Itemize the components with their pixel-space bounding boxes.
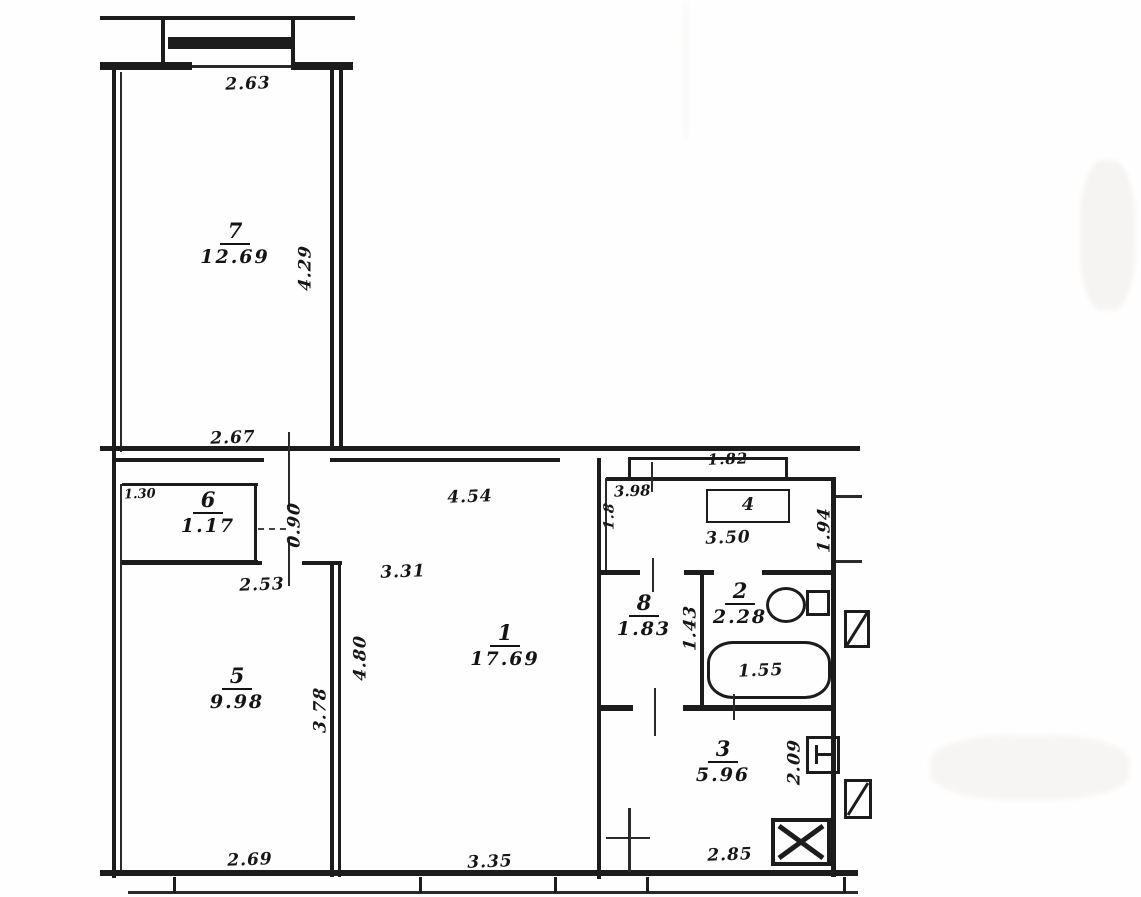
kitchen-top-wall-1 — [601, 705, 633, 711]
room7-left-wall-inner — [120, 72, 122, 452]
dim-room7-top: 2.63 — [200, 72, 297, 95]
room6-number: 6 — [193, 489, 224, 514]
vent-shaft-diagonal-1 — [844, 610, 870, 648]
room6-label: 6 1.17 — [172, 489, 244, 537]
dim-entry-door: 0.90 — [285, 501, 305, 549]
room2-label: 2 2.28 — [708, 580, 772, 628]
kitchen-top-wall-2 — [683, 705, 835, 711]
hall-bottom-wall-1 — [601, 570, 640, 575]
right-outer-wall — [831, 477, 836, 877]
bottom-tick-3 — [554, 877, 557, 893]
room5-number: 5 — [222, 665, 253, 690]
dim-room1-top: 4.54 — [425, 485, 516, 508]
dim-wc-right: 1.43 — [681, 604, 701, 652]
dim-kitchen-bottom: 2.85 — [690, 844, 771, 867]
room7-right-wall — [330, 62, 334, 449]
hall-bottom-wall-3 — [762, 570, 835, 575]
room5-top-wall-left — [122, 561, 262, 565]
kitchen-door-jamb — [654, 688, 656, 736]
section-top-inner-mid — [330, 458, 560, 462]
scan-streak — [684, 0, 688, 140]
room6-right-wall — [254, 483, 257, 563]
dim-hall-left: 1.8 — [602, 501, 618, 530]
room3-label: 3 5.96 — [678, 738, 768, 786]
right-stub-1 — [836, 495, 862, 498]
towel-rail-stem — [815, 745, 818, 764]
room2-number: 2 — [725, 580, 756, 605]
center-right-wall — [597, 458, 601, 879]
dim-room5-right: 3.78 — [311, 686, 331, 734]
section-top-inner-left — [112, 458, 264, 462]
room5-right-wall-inner — [338, 561, 341, 877]
dim-room6-width: 1.30 — [124, 486, 156, 502]
wc-door-jamb — [652, 558, 654, 592]
dim-hall-top: 3.98 — [614, 481, 651, 500]
room3-number: 3 — [708, 738, 739, 763]
room6-door-dash — [258, 528, 286, 530]
room4-number: 4 — [708, 491, 788, 519]
balcony-top-wall — [100, 16, 355, 20]
right-stub-2 — [836, 560, 862, 563]
bottom-tick-4 — [646, 877, 649, 893]
dim-tub-length: 1.55 — [738, 658, 829, 681]
room1-number: 1 — [490, 622, 521, 647]
room8-label: 8 1.83 — [612, 592, 676, 640]
room1-area: 17.69 — [460, 648, 550, 670]
dim-corridor-left: 4.80 — [351, 634, 371, 682]
dim-hall-niche: 1.82 — [688, 449, 769, 470]
stove-cross-icon — [771, 818, 831, 866]
bathtub-icon: 1.55 — [707, 641, 831, 699]
room6-area: 1.17 — [172, 515, 244, 537]
room7-left-wall — [112, 62, 116, 463]
vent-shaft-diagonal-2 — [844, 779, 872, 819]
room6-top-wall — [122, 483, 258, 486]
washbasin-icon — [766, 587, 806, 623]
dim-room1-bottom: 3.35 — [445, 850, 536, 873]
bottom-tick-2 — [419, 877, 422, 893]
entry-jamb-tick-1 — [288, 432, 290, 510]
room7-area: 12.69 — [185, 246, 285, 268]
dim-room5-top: 2.53 — [222, 574, 303, 597]
washbasin-side-icon — [806, 590, 830, 616]
kitchen-partial-tick — [606, 837, 650, 839]
floorplan-scan: 2.63 7 12.69 4.29 2.67 1.30 6 1.17 0.90 … — [0, 0, 1141, 897]
room8-area: 1.83 — [612, 618, 676, 640]
room7-number: 7 — [220, 220, 251, 245]
dim-room5-bottom: 2.69 — [205, 848, 296, 871]
bottom-baseline — [128, 891, 858, 894]
dim-room7-right: 4.29 — [296, 244, 316, 292]
room7-label: 7 12.69 — [185, 220, 285, 268]
room7-top-wall-right — [291, 62, 353, 70]
scan-smudge-2 — [930, 735, 1130, 800]
room5-area: 9.98 — [192, 691, 282, 713]
left-outer-wall — [112, 458, 116, 878]
kitchen-wall-tick — [733, 694, 735, 720]
room8-number: 8 — [629, 592, 660, 617]
room7-right-wall-inner — [339, 62, 343, 449]
bottom-tick-1 — [173, 877, 176, 893]
left-outer-wall-inner — [120, 484, 122, 870]
dim-room1-inner: 3.31 — [368, 561, 439, 583]
room1-label: 1 17.69 — [460, 622, 550, 670]
room3-area: 5.96 — [678, 764, 768, 786]
hall-closet: 4 — [706, 489, 790, 523]
room5-top-wall-right — [302, 561, 342, 565]
dim-kitchen-right: 2.09 — [785, 738, 805, 786]
balcony-window-band — [168, 37, 294, 49]
scan-smudge-1 — [1080, 160, 1135, 310]
kitchen-partial-wall — [628, 808, 631, 872]
bottom-tick-5 — [843, 877, 846, 893]
room5-label: 5 9.98 — [192, 665, 282, 713]
room4-area: 3.50 — [688, 527, 769, 550]
room2-area: 2.28 — [708, 606, 772, 628]
hall-top-wall — [606, 477, 836, 481]
hall-bottom-wall-2 — [684, 570, 714, 575]
room7-window-sill — [192, 65, 291, 68]
hall-tick — [651, 462, 653, 492]
balcony-left-wall — [161, 19, 165, 66]
